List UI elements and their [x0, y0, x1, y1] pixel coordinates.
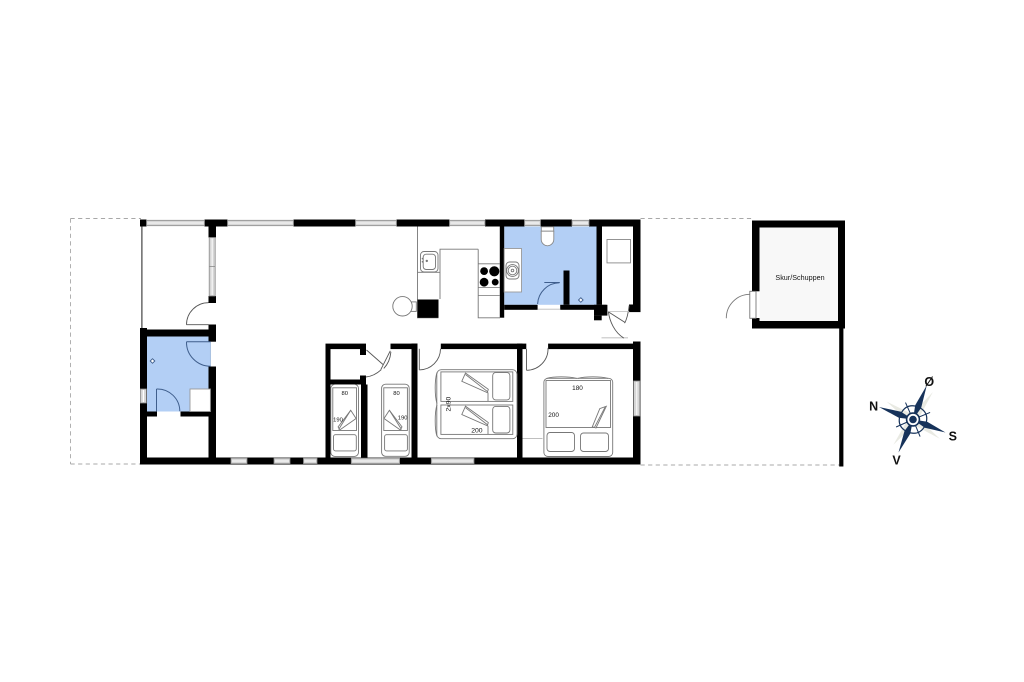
svg-text:N: N [869, 400, 878, 414]
svg-text:80: 80 [341, 391, 347, 397]
svg-text:Ø: Ø [924, 375, 934, 389]
svg-text:2x90: 2x90 [446, 397, 453, 412]
svg-text:180: 180 [572, 385, 583, 392]
svg-text:V: V [892, 454, 901, 468]
svg-text:200: 200 [548, 412, 559, 419]
svg-text:S: S [949, 429, 957, 443]
svg-text:190: 190 [333, 418, 343, 424]
svg-text:200: 200 [471, 428, 483, 435]
svg-text:190: 190 [398, 416, 408, 422]
svg-text:80: 80 [393, 391, 399, 397]
svg-text:Skur/Schuppen: Skur/Schuppen [775, 273, 824, 282]
